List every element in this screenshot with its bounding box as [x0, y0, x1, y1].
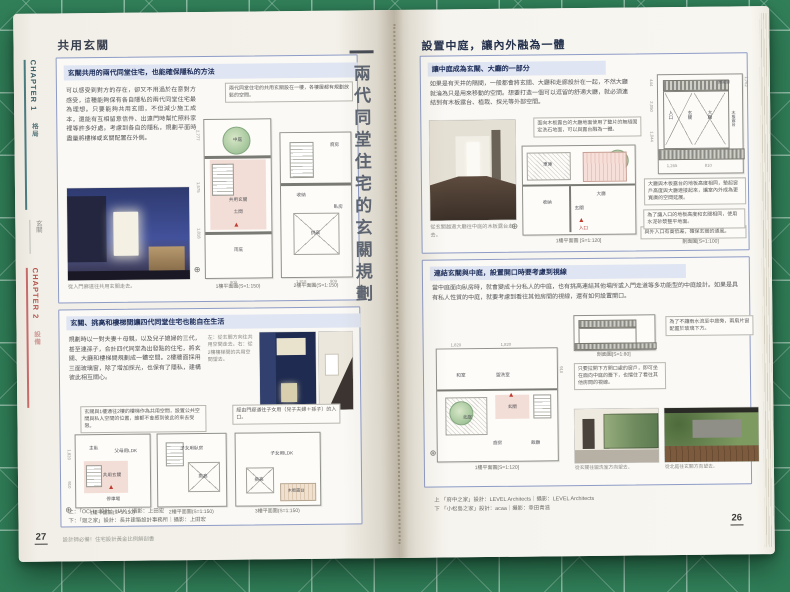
left-section1-callout: 兩代同堂住宅的共用玄關設在一樓，各樓層都有規劃放鬆的空間。 [225, 81, 353, 103]
room-label: 玄關 [575, 205, 584, 210]
floor-plan-1f-small: 共用玄關 主臥 父母用LDK 停車場 1,820 910 [75, 434, 152, 509]
room-label: 收納 [296, 192, 305, 197]
plan-label: 1樓平面圖 [S=1:120] [523, 236, 635, 244]
photo-lit-door [281, 383, 297, 402]
stairs [533, 394, 551, 418]
wall [281, 182, 351, 185]
room-label: 木板露台 [288, 489, 305, 494]
dimension-label: 1,818 [196, 228, 201, 239]
entry-marker-icon [234, 223, 238, 227]
plan-label: 1樓平面圖[S=1:120] [437, 463, 557, 471]
credit-line: 上 「府中之家」設計：LEVEL Architects｜攝影：LEVEL Arc… [434, 494, 594, 504]
spine-title-rule [350, 50, 374, 53]
credit-line: 下 「小松島之家」設計：acaa｜攝影：幸田青滋 [434, 503, 550, 512]
mini-section-drawing [573, 314, 655, 351]
photo-lit-entrance [114, 212, 139, 256]
room-label: 飯廳 [531, 440, 540, 445]
photo-artwork [325, 353, 339, 375]
compass-icon: ⊕ [194, 266, 201, 274]
photo-end-door [466, 142, 479, 176]
floor-plan-1f-courtyard-house: 車庫 大廳 收納 玄關 入口 ⊕ [522, 144, 637, 235]
credit-line: 下：「廻之家」設計：長井建築設計事務所｜攝影：上田宏 [68, 515, 206, 524]
deck-area [583, 152, 627, 182]
right-section2-photo-caption2: 從北庭往玄關方向望去。 [665, 464, 759, 472]
stairs [212, 164, 234, 196]
left-section2-caption: 左：從玄關方向往共用空間走去。右：從2樓樓梯間的共用空間望去。 [208, 334, 254, 363]
photo-lit-window [276, 338, 305, 355]
photo-facade [259, 332, 275, 410]
chapter1-tab: CHAPTER 1 格局 [24, 60, 40, 210]
right-section2-title: 連結玄關與中庭，設置開口時要考慮到視線 [430, 264, 686, 281]
dimension-label: 910 [67, 481, 72, 488]
plan-label: 1樓平面圖(S=1:150) [197, 282, 279, 290]
wall [205, 231, 271, 234]
room-label: 共用玄關 [229, 197, 247, 202]
photo-floor [575, 449, 659, 463]
room-label: 玄關 [688, 110, 693, 119]
room-label: 入口 [669, 110, 674, 119]
room-label: 盥洗室 [496, 372, 510, 377]
chapter1-topic: 格局 [30, 122, 37, 137]
spine-title: 兩代同堂住宅的玄關規劃 [348, 64, 376, 334]
left-section1-photo-caption: 從入門廊道往共用玄關走去。 [68, 283, 198, 292]
floor-plan-1f-shared-entrance: 中庭 共用玄關 土間 雨庇 2,777 1,575 1,818 909 ⊕ [203, 118, 273, 279]
left-section2-box: 玄關、挑高和樓梯間讓四代同堂住宅也能自在生活 規劃時以一對夫妻＋母親，以及兒子媳… [58, 306, 362, 527]
right-section1-callout1: 大廳與木板露台的地板高度相同，墊起窗戶高度與大廳連接起來，讓室內外成為更寬廣的空… [644, 177, 746, 205]
right-page: 設置中庭，讓內外融為一體 讓中庭成為玄關、大廳的一部分 如果是有天井的隔間，一般… [395, 6, 775, 558]
room-label: 子女用LDK [270, 450, 293, 456]
wall [437, 388, 557, 391]
section-foundation [575, 342, 657, 350]
room-label: 玄關 [508, 404, 517, 409]
right-section1-body: 如果是有天井的隔間，一般都會將玄關、大廳和走廊設計在一起，不然大廳就淪為只是用來… [430, 79, 628, 110]
photo-wood-deck [665, 445, 759, 462]
photo-exterior-dusk [67, 187, 190, 280]
dimension-label: 1,265 [667, 163, 678, 168]
floor-plan-2f-small: 子女用臥房 挑高 [157, 433, 228, 508]
photo-building-mass [67, 196, 107, 263]
book-footer-title: 設計師必備！住宅設計黃金比例解剖書 [63, 535, 155, 544]
entry-marker-icon [579, 218, 583, 222]
plan-label: 3樓平面圖(S=1:150) [240, 507, 314, 515]
chapter2-tab: CHAPTER 2 設備 [26, 268, 41, 408]
room-label: 停車場 [106, 496, 120, 501]
left-page: CHAPTER 1 格局 玄關 CHAPTER 2 設備 共用玄關 玄關共用的兩… [13, 10, 401, 562]
plan-label: 2樓平面圖(S=1:150) [275, 281, 357, 289]
right-section1-title: 讓中庭成為玄關、大廳的一部分 [428, 61, 606, 77]
photo-hall-corridor [429, 120, 516, 221]
section-label: 剖面圖[S=1:80] [574, 350, 654, 358]
right-section2-body: 當中庭面向臥房時，就會變成十分私人的中庭，也有挑高連結其他場所或入門走道等多功能… [432, 281, 738, 303]
dimension-label: 810 [705, 163, 712, 168]
left-section1-title: 玄關共用的兩代同堂住宅，也能確保隱私的方法 [64, 62, 358, 80]
wall [523, 183, 635, 186]
chapter1-subtab-genkan: 玄關 [29, 220, 42, 254]
stairs [86, 465, 102, 487]
photo-corridor-glazing [574, 408, 659, 463]
room-label: 土間 [234, 209, 243, 214]
entry-marker-icon [509, 393, 513, 397]
left-section2-callout2: 經由門廊通往子女用（兒子夫婦＋孫子）的入口。 [232, 404, 340, 425]
floor-plan-3f-small: 子女用LDK 挑高 木板露台 [235, 432, 322, 507]
room-label: 中庭 [233, 137, 242, 142]
dimension-label: 1,762 [744, 76, 749, 87]
chapter2-topic: 設備 [32, 330, 39, 345]
room-label: 收納 [543, 200, 552, 205]
section-foundation [659, 148, 745, 160]
right-section1-plan-callout: 面向木板露台的大廳地面使用了整片的無縫固定洗石地面，可以與露台融為一體。 [533, 116, 641, 137]
right-section2-box: 連結玄關與中庭，設置開口時要考慮到視線 當中庭面向臥房時，就會變成十分私人的中庭… [422, 256, 752, 487]
room-label: 和室 [456, 373, 465, 378]
photo-courtyard [664, 407, 759, 462]
room-label: 子女用臥房 [180, 445, 203, 451]
right-page-header: 設置中庭，讓內外融為一體 [421, 36, 565, 54]
room-label: 北庭 [463, 415, 472, 420]
left-section1-box: 玄關共用的兩代同堂住宅，也能確保隱私的方法 可以感受到對方的存在，卻又不用過於在… [56, 54, 361, 303]
room-label: 挑高 [311, 230, 320, 235]
room-label: 挑高 [254, 477, 263, 482]
room-label: 大廳 [708, 110, 713, 119]
dimension-label: 1,820 [451, 342, 462, 347]
credit-line: 上：「OCH」設計：HAK｜攝影：上田宏 [68, 506, 164, 515]
stairs [290, 142, 314, 178]
room-label: 臥房 [334, 204, 343, 209]
dimension-label: 1,820 [501, 342, 512, 347]
tree-icon [449, 401, 473, 425]
photo-glass-green [603, 414, 659, 449]
chapter2-label: CHAPTER 2 [31, 268, 41, 320]
dimension-label: 2,777 [195, 130, 200, 141]
wall [569, 186, 571, 232]
photo-door-frame [491, 130, 500, 180]
dimension-label: 1,820 [67, 449, 72, 460]
left-section2-title: 玄關、挑高和樓梯間讓四代同堂住宅也能自在生活 [66, 313, 360, 330]
photo-eave [664, 407, 758, 413]
left-page-header: 共用玄關 [57, 37, 109, 54]
room-label: 車庫 [543, 162, 552, 167]
right-section2-photo-caption1: 從玄關往盥洗室方向望去。 [575, 465, 659, 473]
cross-section-drawing: 入口 玄關 大廳 木板露台 固定窗 1,762 444 2,050 1,044 … [657, 73, 744, 174]
left-section2-callout1: 玄關與1樓通往2樓的樓梯作為共用空間，設置公共空間與私人空間的位置，誰都不會感到… [80, 405, 206, 434]
chapter1-label: CHAPTER 1 [29, 60, 39, 112]
photo-exterior-night [259, 332, 316, 411]
dimension-label: 1,044 [649, 131, 654, 142]
left-section1-body: 可以感受到對方的存在，卻又不用過於在意對方感受，這種能夠保有各自隱私的兩代同堂住… [66, 86, 197, 145]
room-label-entry: 入口 [579, 225, 588, 230]
dimension-label: 910 [559, 366, 564, 373]
floor-plan-1f-north-court: 和室 盥洗室 玄關 北庭 廚房 飯廳 1,820 1,820 910 ⊕ [436, 347, 559, 462]
dimension-label: 1,575 [196, 182, 201, 193]
room-label: 主臥 [89, 445, 98, 450]
dimension-label: 444 [649, 79, 654, 86]
room-label: 固定窗 [718, 80, 730, 85]
right-section2-callout2: 只要拉開下方開口處的窗戶，即可坐在面向中庭的簷下，也擋住了看往其他房間的視線。 [574, 362, 666, 390]
right-section1-photo-caption: 從玄關越過大廳往中庭的木板露台走去。 [430, 224, 522, 240]
photo-garage-glow [148, 246, 185, 270]
room-label: 木板露台 [731, 110, 736, 126]
room-label: 父母用LDK [114, 448, 137, 454]
section-label: 剖面圖[S=1:100] [659, 237, 743, 245]
compass-icon: ⊕ [430, 450, 437, 458]
photo-stair-interior [318, 331, 353, 409]
photo-far-door [583, 419, 595, 449]
wall [205, 155, 271, 158]
dimension-label: 2,050 [649, 101, 654, 112]
entry-marker-icon [109, 485, 113, 489]
right-section2-callout1: 為了不讓雨水流至中庭旁，兩扇片窗配置於玻璃下方。 [665, 315, 753, 336]
page-number-left: 27 [35, 532, 48, 545]
photo-ground [68, 270, 190, 280]
room-label: 共用玄關 [103, 472, 121, 477]
room-label: 大廳 [596, 191, 605, 196]
page-number-right: 26 [730, 512, 743, 525]
room-label: 廚房 [493, 440, 502, 445]
open-book: CHAPTER 1 格局 玄關 CHAPTER 2 設備 共用玄關 玄關共用的兩… [13, 6, 775, 562]
room-label: 雨庇 [234, 247, 243, 252]
room-label: 挑高 [198, 473, 207, 478]
room-label: 廚房 [330, 142, 339, 147]
photo-back-wall [693, 419, 742, 438]
compass-icon: ⊕ [511, 223, 518, 231]
left-section2-body: 規劃時以一對夫妻＋母親，以及兒子媳婦的三代，甚至連孫子，合計四代同堂為出發點的住… [69, 335, 201, 384]
photo-of-open-book-on-cutting-mat: CHAPTER 1 格局 玄關 CHAPTER 2 設備 共用玄關 玄關共用的兩… [0, 0, 790, 592]
floor-plan-2f: 廚房 收納 挑高 臥房 1,818 909 [279, 131, 353, 278]
right-section1-callout2: 為了讓入口的地板高度和玄關相同，使用水泥砂漿整平地面。 [643, 208, 745, 229]
photo-dark-carpet-floor [430, 176, 516, 221]
